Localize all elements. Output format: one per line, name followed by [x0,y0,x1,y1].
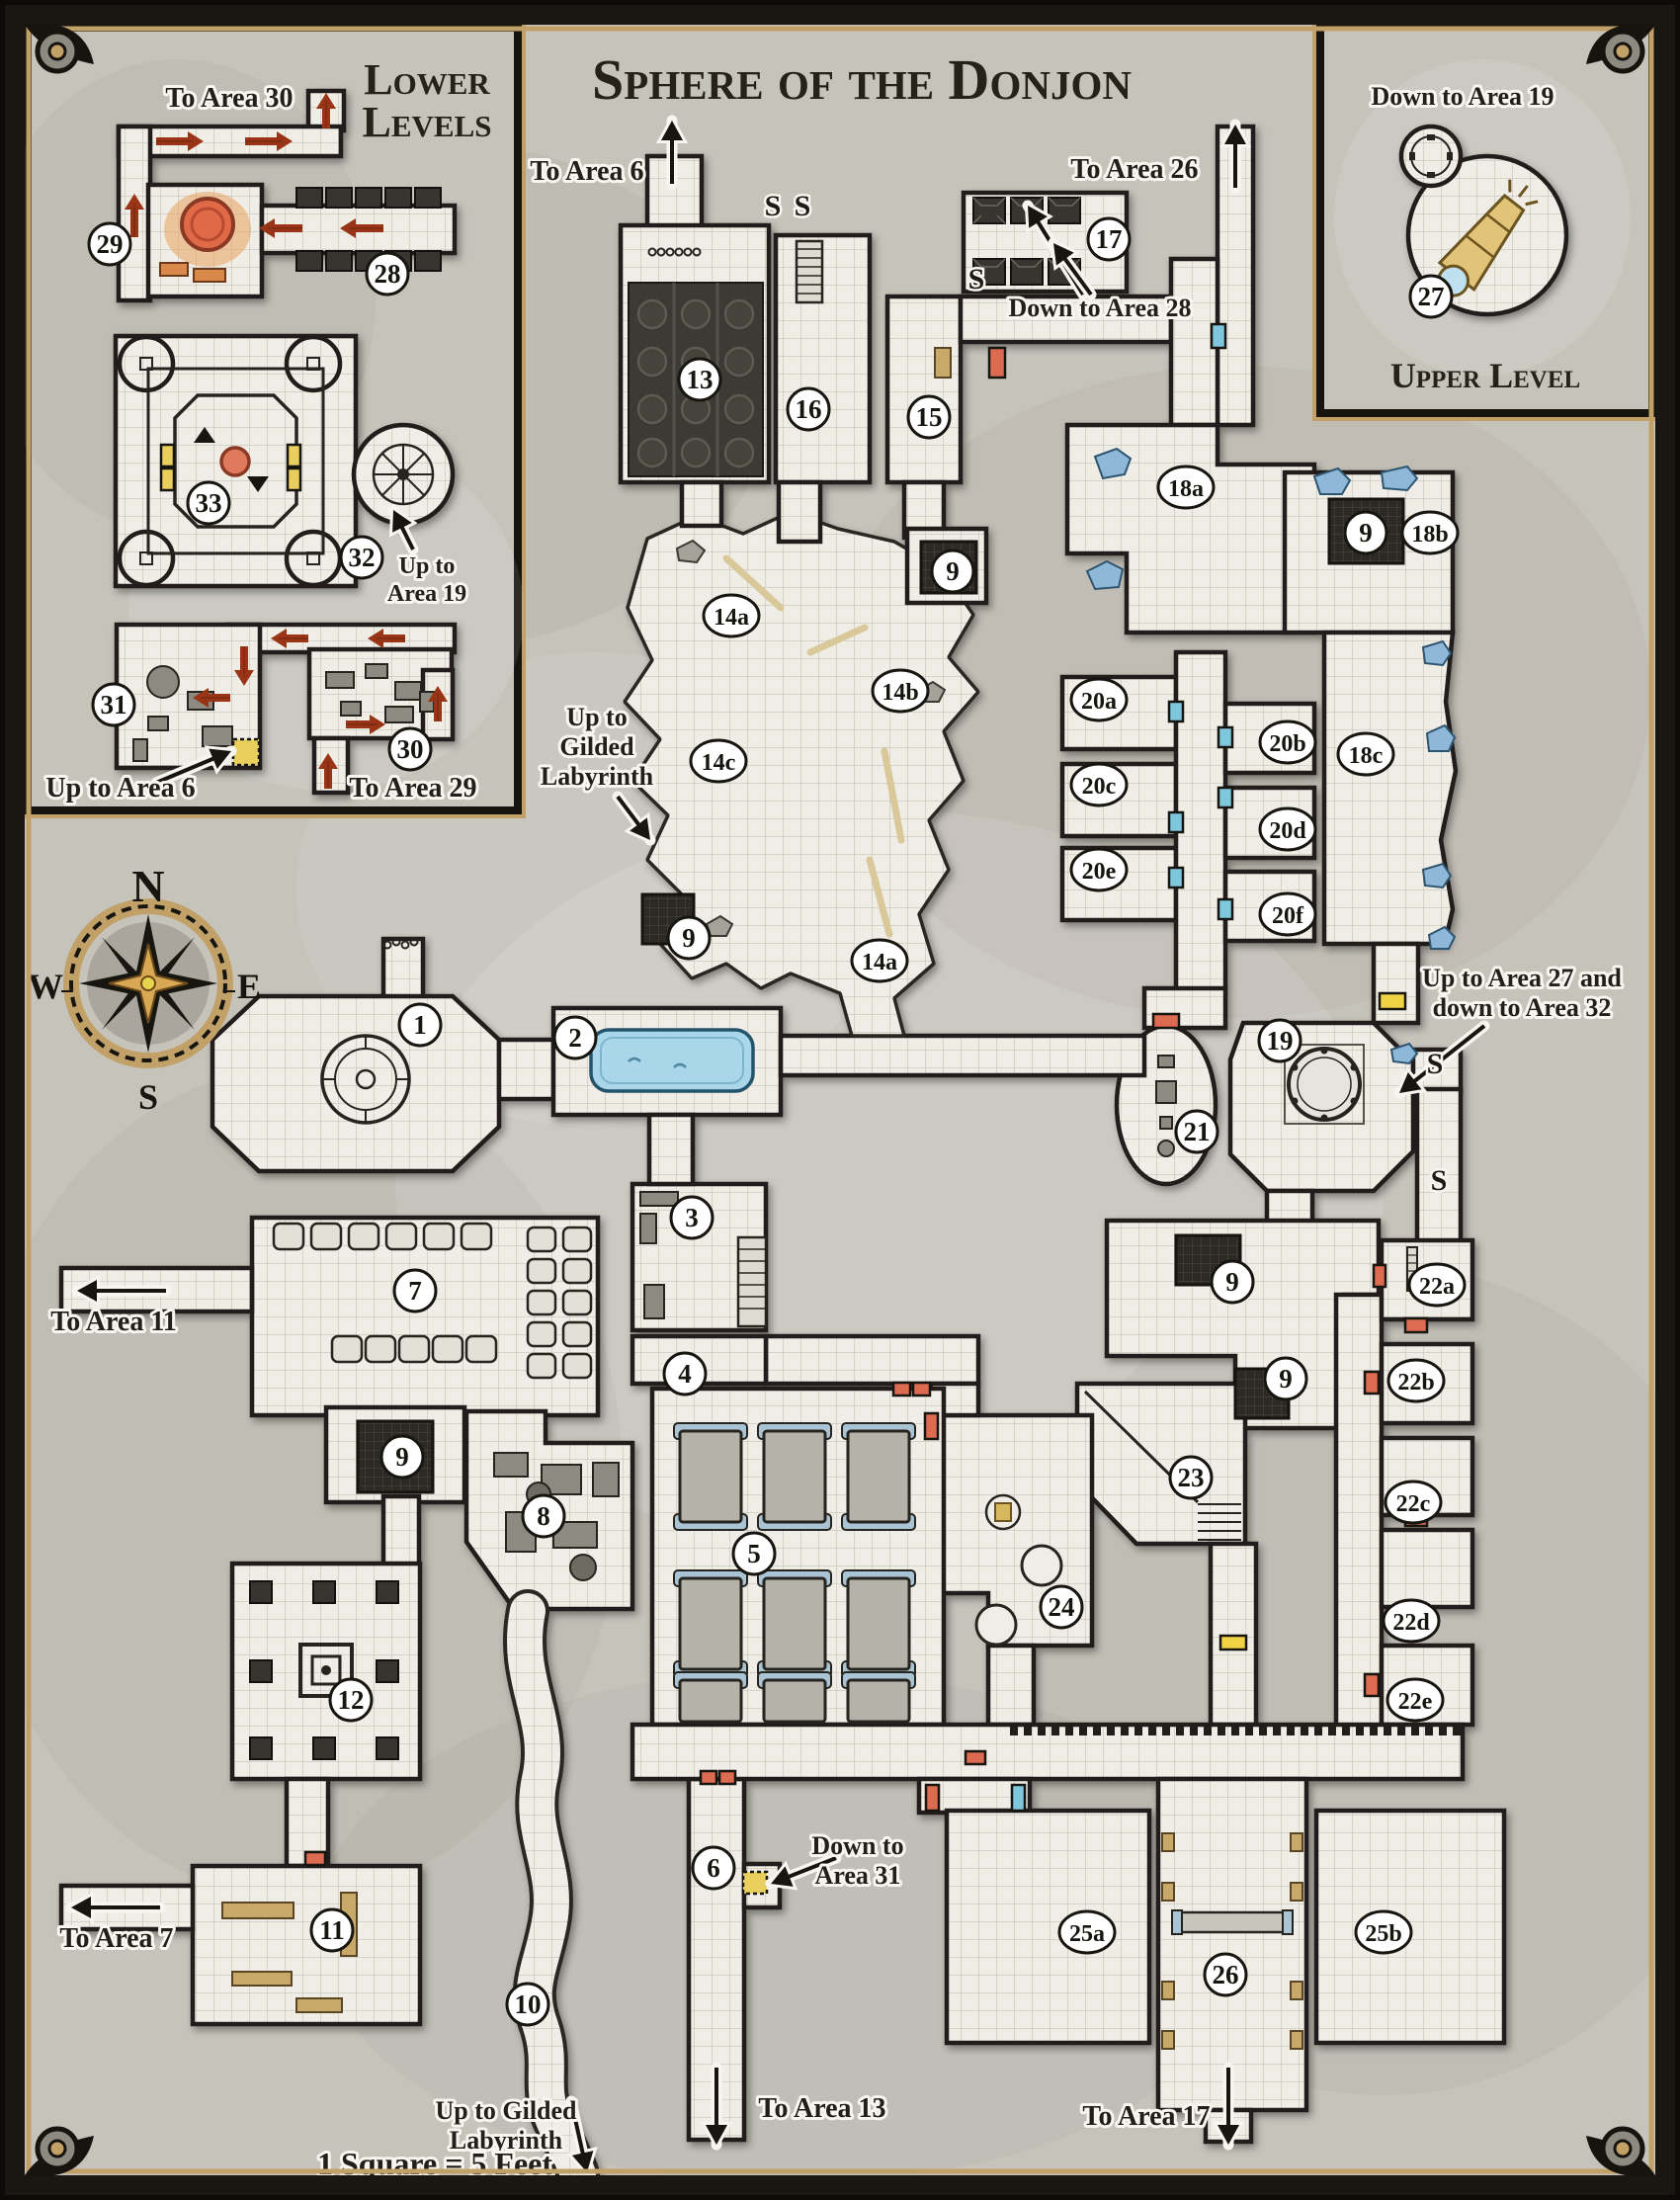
door-marker-y [1220,1636,1246,1650]
area-badge-12: 12 [330,1679,372,1721]
inset-lower-title-line2: Levels [362,98,491,146]
portcullis-tooth [1051,1725,1059,1735]
door-marker-t [288,445,300,466]
corridor-24-south [988,1646,1034,1725]
cell [349,1224,378,1249]
area-badge-14c: 14c [691,740,746,782]
svg-text:3: 3 [685,1203,699,1232]
stone-table [674,1672,747,1722]
portcullis-tooth [1038,1725,1046,1735]
cell [466,1336,496,1362]
svg-text:7: 7 [408,1276,422,1306]
portcullis-tooth [1079,1725,1087,1735]
svg-text:9: 9 [682,923,696,953]
svg-text:9: 9 [1225,1267,1239,1297]
secret-door-marker: S [1431,1164,1448,1197]
portcullis-tooth [1024,1725,1032,1735]
svg-text:9: 9 [395,1442,409,1472]
inset-upper-title: Upper Level [1390,356,1580,395]
area-badge-16: 16 [788,388,829,430]
door-marker-r [1365,1674,1379,1696]
compass-west: W [28,967,63,1006]
door-marker-r [966,1751,985,1764]
svg-text:27: 27 [1418,282,1445,311]
stone-table [842,1423,915,1530]
portcullis-tooth [1176,1725,1184,1735]
svg-text:33: 33 [196,488,222,518]
portcullis-tooth [1453,1725,1461,1735]
door-marker-b [1218,727,1232,747]
area-badge-22e: 22e [1387,1679,1443,1721]
portcullis-tooth [1397,1725,1405,1735]
corridor-4-east [766,1336,978,1384]
svg-text:24: 24 [1049,1592,1075,1622]
svg-text:14c: 14c [702,750,736,776]
area-badge-5: 5 [733,1533,775,1574]
svg-text:22e: 22e [1398,1689,1433,1715]
area-badge-14a: 14a [852,940,907,981]
svg-text:26: 26 [1213,1960,1239,1989]
cell-dark [296,188,322,208]
cell [386,1224,416,1249]
corridor-2-3 [649,1115,693,1184]
portcullis-tooth [1425,1725,1433,1735]
compass-north: N [131,861,164,911]
cell [563,1227,591,1251]
svg-text:29: 29 [97,229,124,259]
portcullis-tooth [1411,1725,1419,1735]
door-marker-r [1153,1014,1179,1028]
svg-text:10: 10 [515,1989,542,2019]
portcullis-tooth [1287,1725,1295,1735]
hall-25a [947,1811,1149,2043]
svg-text:19: 19 [1267,1026,1294,1056]
door-marker-r [1365,1372,1379,1394]
cell [332,1336,362,1362]
cell-dark [415,251,441,271]
label-down-to-area-28: Down to Area 28 [1008,294,1191,322]
area-badge-14b: 14b [873,670,928,712]
svg-text:20b: 20b [1269,731,1305,757]
door-marker-r [925,1413,938,1439]
cell-dark [296,251,322,271]
svg-text:1: 1 [413,1010,427,1040]
corridor-23-south [1211,1544,1256,1725]
cell [311,1224,341,1249]
svg-text:9: 9 [1279,1364,1293,1394]
area-badge-21: 21 [1176,1111,1218,1152]
svg-text:20d: 20d [1269,818,1306,844]
area-badge-25a: 25a [1059,1911,1115,1953]
stone-table [758,1672,831,1722]
label-up-to-area-27-down-32: Up to Area 27 anddown to Area 32 [1422,964,1622,1022]
dungeon-map-page: N E S W SSSSS 123456789999991011121314a1… [0,0,1680,2200]
svg-text:22a: 22a [1419,1274,1455,1300]
room-32-wheel [374,445,433,504]
label-to-area-13: To Area 13 [758,2093,885,2124]
area-badge-9: 9 [1345,512,1386,553]
portcullis-tooth [1204,1725,1212,1735]
cell [563,1291,591,1314]
cell-dark [415,188,441,208]
area-badge-9: 9 [1212,1261,1253,1303]
svg-text:4: 4 [678,1359,692,1389]
stone-table [842,1570,915,1677]
portcullis-tooth [1093,1725,1101,1735]
door-marker-d [233,739,259,765]
portcullis-tooth [1010,1725,1018,1735]
secret-door-marker: S [1427,1048,1444,1080]
corridor-19-south [1267,1191,1312,1223]
svg-text:14a: 14a [862,950,897,975]
corridor-22 [1336,1295,1382,1730]
cell [399,1336,429,1362]
label-to-area-7: To Area 7 [59,1923,173,1954]
portcullis-tooth [1273,1725,1281,1735]
cell [563,1322,591,1346]
cell-dark [385,188,411,208]
pool-2 [591,1030,753,1091]
svg-text:21: 21 [1184,1117,1211,1146]
area-badge-31: 31 [93,684,134,725]
portcullis-tooth [1121,1725,1129,1735]
svg-text:18c: 18c [1349,743,1384,769]
door-marker-r [926,1785,939,1811]
area-badge-28: 28 [367,253,408,295]
svg-text:14a: 14a [714,605,749,631]
cell [528,1259,555,1283]
area-badge-11: 11 [311,1909,353,1951]
area-badge-6: 6 [693,1847,734,1889]
portcullis-tooth [1328,1725,1336,1735]
portcullis-tooth [1342,1725,1350,1735]
svg-text:16: 16 [796,394,822,424]
area-badge-32: 32 [341,537,382,578]
area-badge-3: 3 [671,1197,713,1238]
area-badge-9: 9 [668,917,710,959]
portcullis-tooth [1301,1725,1308,1735]
cell [424,1224,454,1249]
svg-text:12: 12 [338,1685,365,1715]
svg-text:20a: 20a [1081,689,1117,715]
svg-text:20c: 20c [1082,774,1117,800]
portcullis-tooth [1107,1725,1115,1735]
area-badge-20d: 20d [1260,808,1315,850]
area-badge-9: 9 [932,550,973,592]
svg-text:31: 31 [101,690,127,719]
label-to-area-11: To Area 11 [50,1307,177,1337]
area-badge-29: 29 [89,223,130,265]
label-to-area-6: To Area 6 [530,156,643,187]
area-badge-18c: 18c [1338,733,1393,775]
cell [528,1354,555,1378]
area-badge-15: 15 [908,396,950,438]
area-badge-2: 2 [554,1017,596,1058]
label-up-to-area-6: Up to Area 6 [45,773,195,804]
area-badge-17: 17 [1088,218,1130,260]
svg-text:18b: 18b [1411,522,1448,548]
portcullis-tooth [1134,1725,1142,1735]
door-marker-t [161,468,174,490]
svg-text:15: 15 [916,402,943,432]
svg-text:6: 6 [707,1853,720,1883]
area-badge-20e: 20e [1071,849,1127,890]
cell [563,1354,591,1378]
area-badge-20c: 20c [1071,764,1127,805]
room-15 [887,296,961,482]
svg-text:32: 32 [349,543,376,572]
cell [462,1224,491,1249]
area-badge-33: 33 [188,482,229,524]
room-22d [1382,1530,1472,1607]
corridor-18c-down [1374,944,1418,1023]
stone-table [674,1570,747,1677]
inset-lower-title-line1: Lower [364,55,490,104]
area-badge-22d: 22d [1384,1600,1439,1642]
room-1 [212,996,499,1171]
portcullis-tooth [1384,1725,1391,1735]
svg-text:5: 5 [747,1539,761,1568]
area-badge-19: 19 [1259,1020,1301,1061]
svg-text:13: 13 [687,365,714,394]
svg-text:23: 23 [1178,1463,1205,1492]
portcullis-tooth [1439,1725,1447,1735]
door-marker-r [701,1771,716,1784]
area-badge-7: 7 [394,1270,436,1312]
svg-text:22b: 22b [1397,1370,1434,1396]
room-18c [1324,633,1456,944]
stone-table [674,1423,747,1530]
staircase-16 [797,241,822,302]
svg-text:9: 9 [1359,518,1373,548]
svg-text:20e: 20e [1082,859,1117,885]
svg-text:25a: 25a [1069,1921,1105,1947]
door-marker-t [161,445,174,466]
map-title: Sphere of the Donjon [592,47,1132,112]
corridor-9-12 [383,1496,419,1565]
area-badge-22b: 22b [1388,1360,1444,1401]
door-marker-y [1380,993,1405,1009]
door-marker-b [1169,868,1183,888]
area-badge-20b: 20b [1260,721,1315,763]
door-marker-b [1169,812,1183,832]
cell [274,1224,303,1249]
hall-26 [1158,1779,1306,2110]
area-badge-23: 23 [1170,1457,1212,1498]
area-badge-10: 10 [507,1984,548,2025]
svg-text:30: 30 [397,734,424,764]
portcullis-tooth [1148,1725,1156,1735]
svg-text:20f: 20f [1272,903,1304,929]
svg-text:28: 28 [375,259,401,289]
area-badge-14a: 14a [704,595,759,636]
svg-text:2: 2 [568,1023,582,1053]
area-badge-27: 27 [1410,276,1452,317]
portcullis-tooth [1231,1725,1239,1735]
area-badge-20a: 20a [1071,679,1127,720]
corridor-13-cave [682,482,721,526]
svg-text:22d: 22d [1392,1610,1430,1636]
door-marker-d [743,1872,767,1894]
cell [433,1336,462,1362]
cell [366,1336,395,1362]
secret-door-marker: S [968,263,985,296]
portcullis-tooth [1190,1725,1198,1735]
door-marker-b [1218,899,1232,919]
compass-east: E [237,967,261,1006]
label-to-area-17: To Area 17 [1082,2101,1210,2132]
stone-table [842,1672,915,1722]
door-marker-t [288,468,300,490]
cell [528,1322,555,1346]
label-down-to-area-31: Down toArea 31 [811,1831,903,1890]
area-badge-26: 26 [1205,1954,1246,1995]
stone-table [758,1570,831,1677]
portcullis-tooth [1245,1725,1253,1735]
svg-text:17: 17 [1096,224,1123,254]
area-badge-20f: 20f [1260,893,1315,935]
stone-table [758,1423,831,1530]
area-badge-22c: 22c [1386,1481,1441,1523]
area-badge-30: 30 [389,728,431,770]
area-badge-13: 13 [679,359,720,400]
compass-south: S [138,1077,158,1117]
portcullis-tooth [1065,1725,1073,1735]
corridor-east-west [781,1036,1144,1075]
portcullis-tooth [1370,1725,1378,1735]
secret-door-marker: S [795,190,811,222]
area-badge-18b: 18b [1402,512,1458,553]
svg-text:18a: 18a [1168,476,1204,502]
door-marker-r [893,1383,910,1396]
label-to-area-29: To Area 29 [349,773,476,804]
label-down-to-area-19: Down to Area 19 [1371,82,1554,111]
cell [563,1259,591,1283]
portcullis-tooth [1314,1725,1322,1735]
svg-text:22c: 22c [1396,1491,1431,1517]
area-badge-8: 8 [523,1495,564,1537]
door-marker-b [1169,702,1183,721]
corridor-south [632,1725,1463,1779]
area-badge-25b: 25b [1356,1911,1411,1953]
cell-dark [356,188,381,208]
door-marker-r [989,348,1005,378]
area-badge-9: 9 [1265,1358,1306,1399]
cell-dark [326,188,352,208]
corridor-1-2 [499,1040,553,1099]
portcullis-tooth [1356,1725,1364,1735]
area-badge-24: 24 [1041,1586,1082,1628]
door-marker-r [1374,1265,1386,1287]
svg-text:8: 8 [537,1501,550,1531]
corridor-16-cave [779,482,820,542]
secret-door-marker: S [765,190,782,222]
door-marker-r [1405,1318,1427,1332]
cell [528,1291,555,1314]
portcullis-tooth [1218,1725,1225,1735]
area-badge-4: 4 [664,1353,706,1395]
svg-text:25b: 25b [1365,1921,1401,1947]
portcullis-tooth [1162,1725,1170,1735]
staircase-3 [738,1237,766,1326]
tables-5 [674,1423,915,1722]
cell [528,1227,555,1251]
area-badge-1: 1 [399,1004,441,1046]
svg-text:9: 9 [946,556,960,586]
cell-dark [326,251,352,271]
area-badge-9: 9 [381,1436,423,1478]
map-canvas: N E S W SSSSS 123456789999991011121314a1… [0,0,1680,2200]
door-marker-b [1012,1785,1025,1811]
svg-text:14b: 14b [882,680,918,706]
door-marker-r [719,1771,735,1784]
label-to-area-30: To Area 30 [165,83,293,114]
door-marker-r [913,1383,930,1396]
door-marker-b [1218,788,1232,807]
area-badge-18a: 18a [1158,466,1214,508]
svg-text:11: 11 [319,1915,345,1945]
desk-15 [935,348,951,378]
label-to-area-26: To Area 26 [1070,154,1198,185]
portcullis-tooth [1259,1725,1267,1735]
door-marker-r [305,1852,325,1865]
door-marker-b [1212,324,1225,348]
area-badge-22a: 22a [1409,1264,1465,1306]
